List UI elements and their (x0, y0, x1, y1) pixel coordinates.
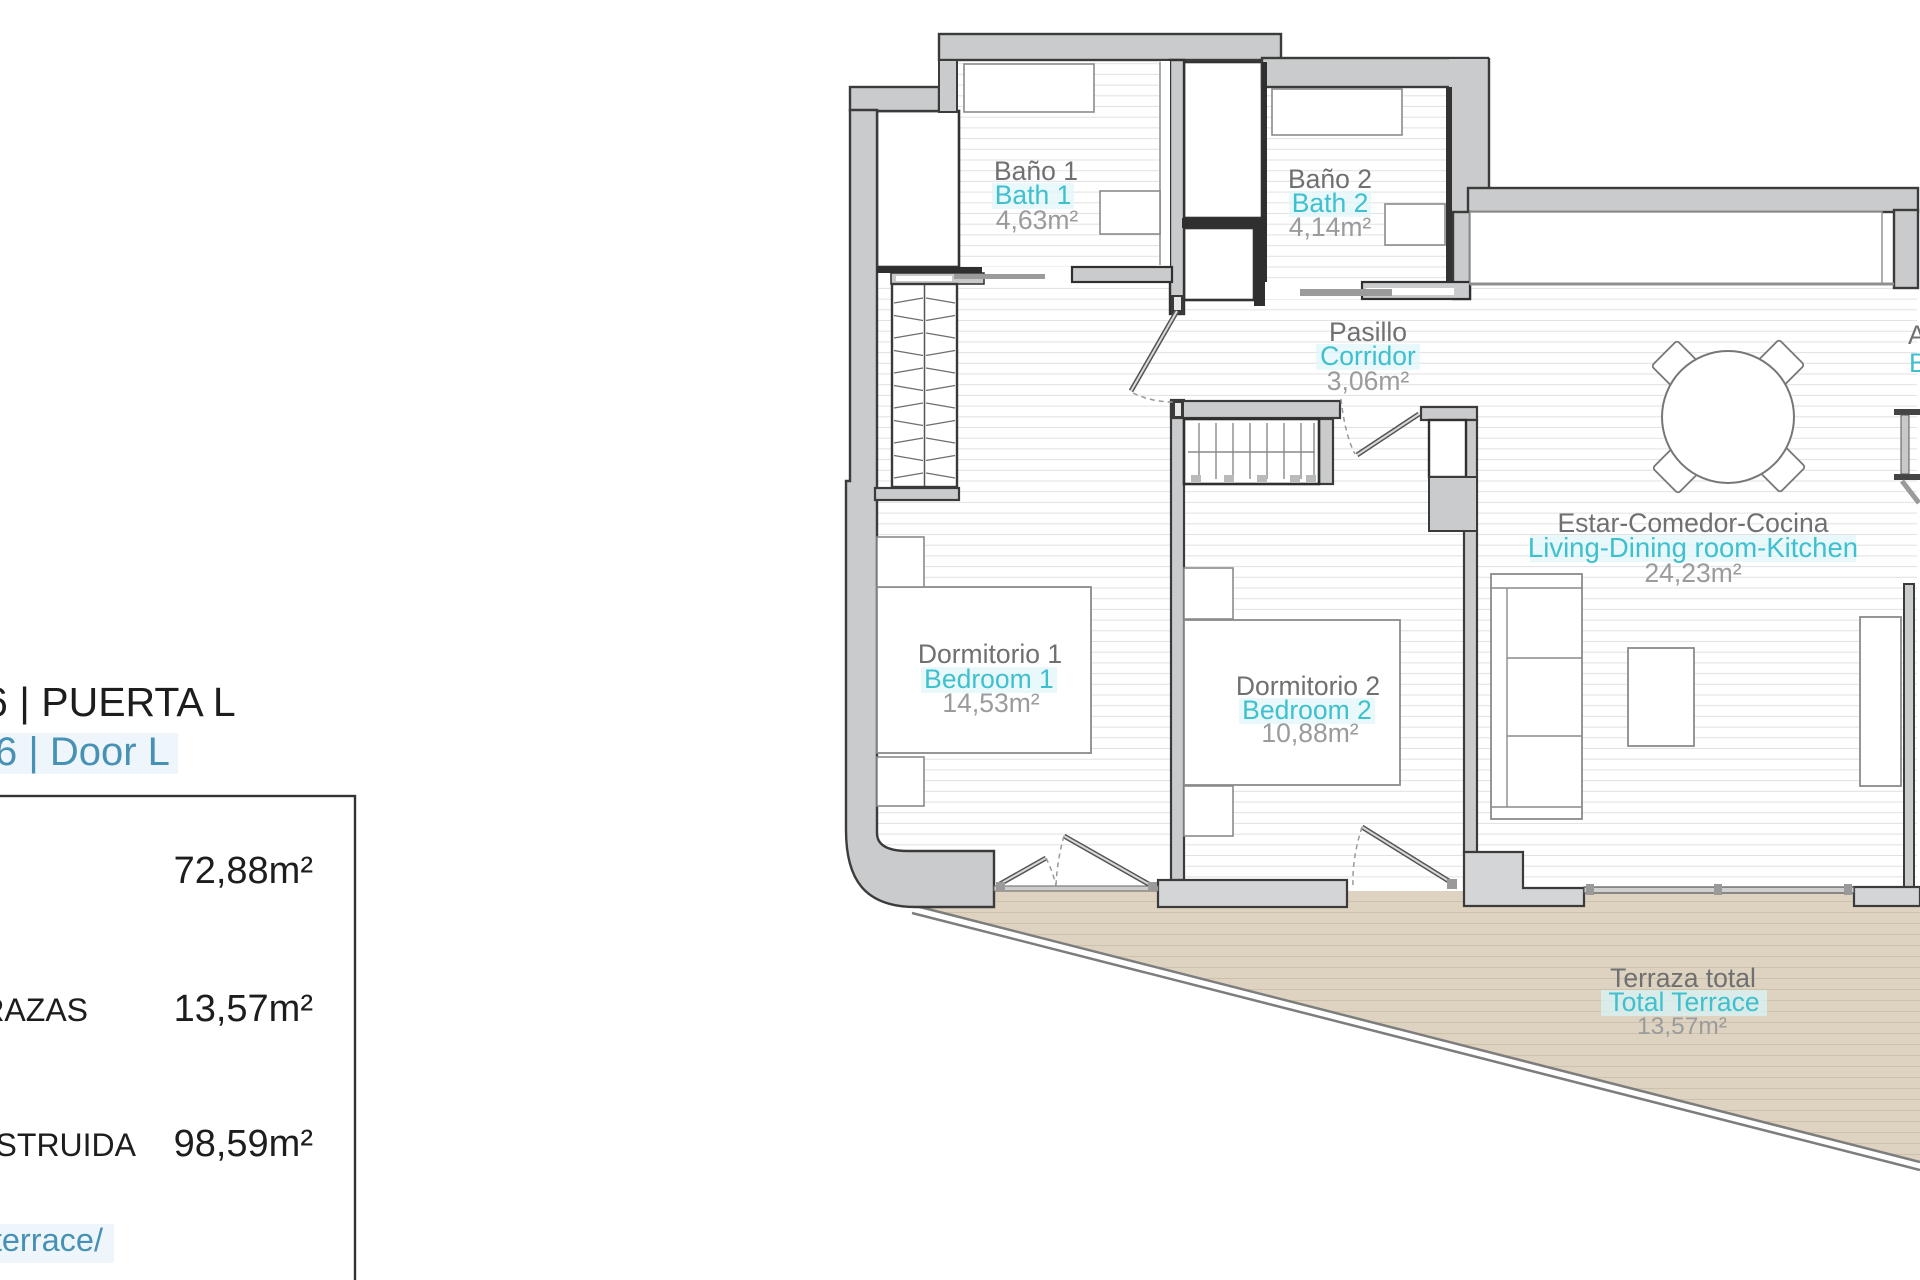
svg-text:A: A (1908, 320, 1920, 350)
svg-text:72,88m²: 72,88m² (174, 850, 313, 892)
svg-text:6 | Door L: 6 | Door L (0, 730, 170, 774)
svg-text:TERRAZAS: TERRAZAS (0, 992, 88, 1028)
svg-text:terrace/: terrace/ (0, 1222, 104, 1258)
svg-text:4,63m²: 4,63m² (996, 205, 1079, 235)
svg-text:6 | PUERTA L: 6 | PUERTA L (0, 679, 236, 725)
svg-text:B: B (1909, 348, 1920, 378)
svg-text:14,53m²: 14,53m² (942, 688, 1039, 718)
svg-text:3,06m²: 3,06m² (1327, 366, 1410, 396)
svg-text:13,57m²: 13,57m² (174, 988, 313, 1030)
svg-text:98,59m²: 98,59m² (174, 1123, 313, 1165)
svg-text:10,88m²: 10,88m² (1261, 718, 1358, 748)
svg-text:24,23m²: 24,23m² (1644, 558, 1741, 588)
svg-text:13,57m²: 13,57m² (1637, 1013, 1727, 1040)
svg-text:4,14m²: 4,14m² (1289, 212, 1372, 242)
svg-text:CONSTRUIDA: CONSTRUIDA (0, 1127, 137, 1163)
